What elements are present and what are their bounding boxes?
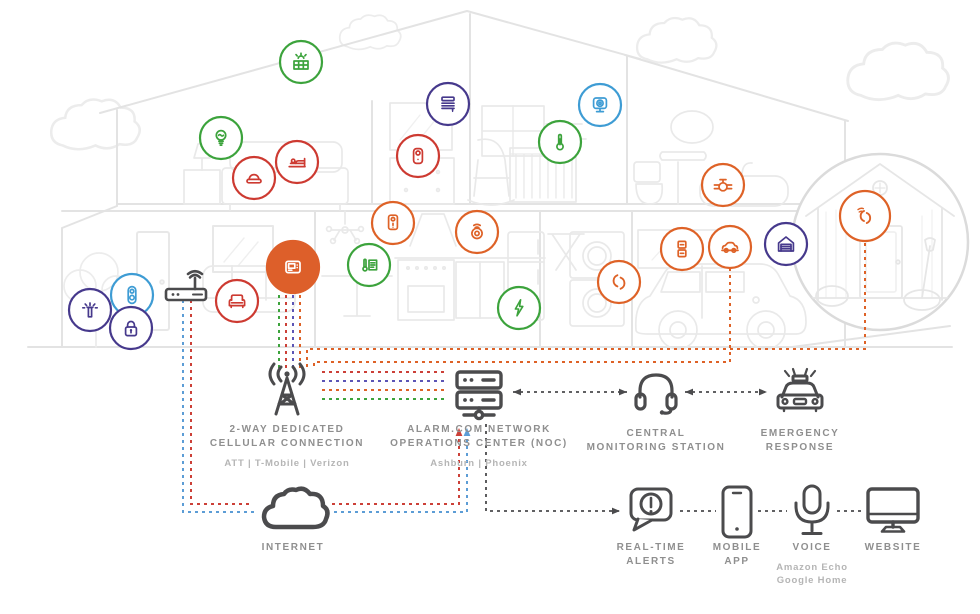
magnifier-shed-detail: [792, 154, 968, 330]
shed-contact-sensor-icon: [840, 191, 890, 241]
smart-light-icon: [200, 117, 242, 159]
central-monitoring-label: CENTRAL MONITORING STATION: [587, 427, 726, 455]
monitoring-camera-icon: [579, 84, 621, 126]
diagram-stage: 2-WAY DEDICATED CELLULAR CONNECTION ATT …: [0, 0, 980, 614]
router-cloud-red-line: [191, 300, 252, 504]
water-valve-icon: [702, 164, 744, 206]
smart-lock-icon: [110, 307, 152, 349]
voice-assistants-sublabel: Amazon Echo: [776, 561, 848, 574]
garage-door-controller-icon: [765, 223, 807, 265]
smoke-co-detector-icon: [456, 211, 498, 253]
furniture-activity-sensor-icon: [216, 280, 258, 322]
window-sensor-icon: [661, 228, 703, 270]
internet-cloud-icon: [264, 489, 327, 527]
monitoring-headset-icon: [636, 375, 676, 415]
laundry-contact-sensor-icon: [598, 261, 640, 303]
router-cloud-blue-line: [183, 300, 254, 512]
cellular-connection-label: 2-WAY DEDICATED CELLULAR CONNECTION ATT …: [210, 423, 364, 470]
bed-sensor-icon: [276, 141, 318, 183]
security-panel-icon: [267, 241, 319, 293]
voice-label: VOICE Amazon Echo Google Home: [776, 541, 848, 587]
mobile-phone-icon: [723, 487, 751, 537]
monitoring-emergency-line: [685, 389, 767, 396]
solar-panel-icon: [280, 41, 322, 83]
noc-servers-icon: [457, 372, 501, 419]
wall-smoke-detector-icon: [372, 202, 414, 244]
connected-car-icon: [709, 226, 751, 268]
smart-thermostat-icon: [348, 244, 390, 286]
indoor-camera-icon: [397, 135, 439, 177]
carriers-sublabel: ATT | T-Mobile | Verizon: [210, 457, 364, 470]
police-car-icon: [778, 369, 822, 411]
window-shade-icon: [427, 83, 469, 125]
internet-label: INTERNET: [262, 541, 325, 555]
cell-tower-icon: [270, 364, 304, 414]
energy-monitor-icon: [498, 287, 540, 329]
website-monitor-icon: [868, 489, 918, 532]
irrigation-sprinkler-icon: [69, 289, 111, 331]
temperature-sensor-icon: [539, 121, 581, 163]
website-label: WEBSITE: [865, 541, 922, 555]
panic-button-icon: [233, 157, 275, 199]
background-clouds: [51, 15, 948, 149]
alerts-bubble-icon: [631, 489, 671, 530]
mobile-app-label: MOBILE APP: [713, 541, 762, 569]
noc-monitoring-line: [513, 389, 627, 396]
diagram-canvas: [0, 0, 980, 614]
voice-mic-icon: [796, 486, 828, 534]
real-time-alerts-label: REAL-TIME ALERTS: [617, 541, 686, 569]
noc-locations-sublabel: Ashburn | Phoenix: [390, 457, 568, 470]
wifi-router-icon: [166, 271, 206, 300]
noc-label: ALARM.COM NETWORK OPERATIONS CENTER (NOC…: [390, 423, 568, 470]
emergency-response-label: EMERGENCY RESPONSE: [761, 427, 840, 455]
